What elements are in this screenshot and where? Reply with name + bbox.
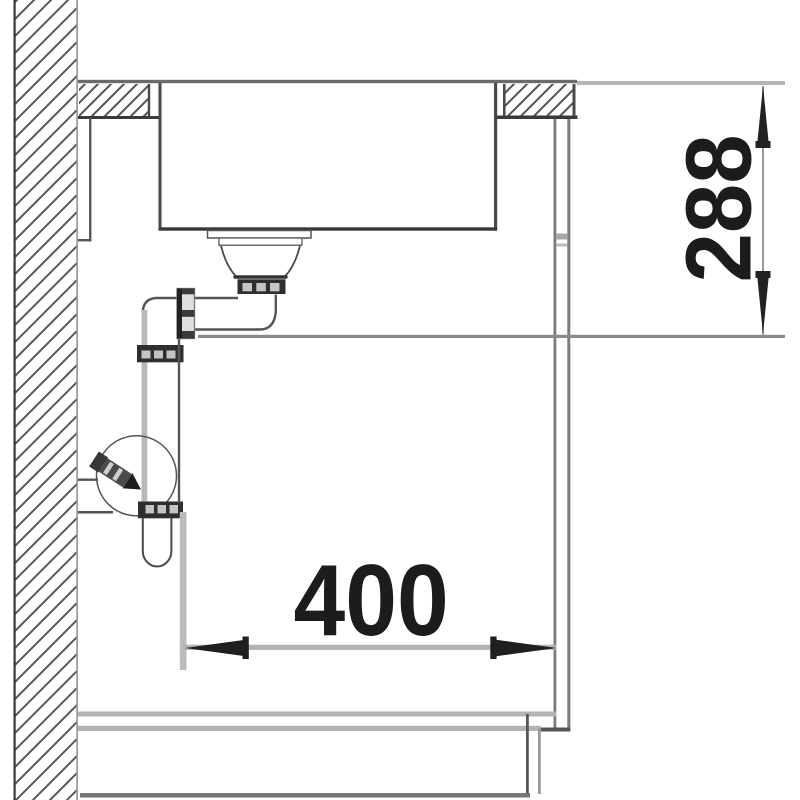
svg-text:400: 400 — [294, 543, 449, 657]
svg-text:288: 288 — [668, 134, 771, 282]
